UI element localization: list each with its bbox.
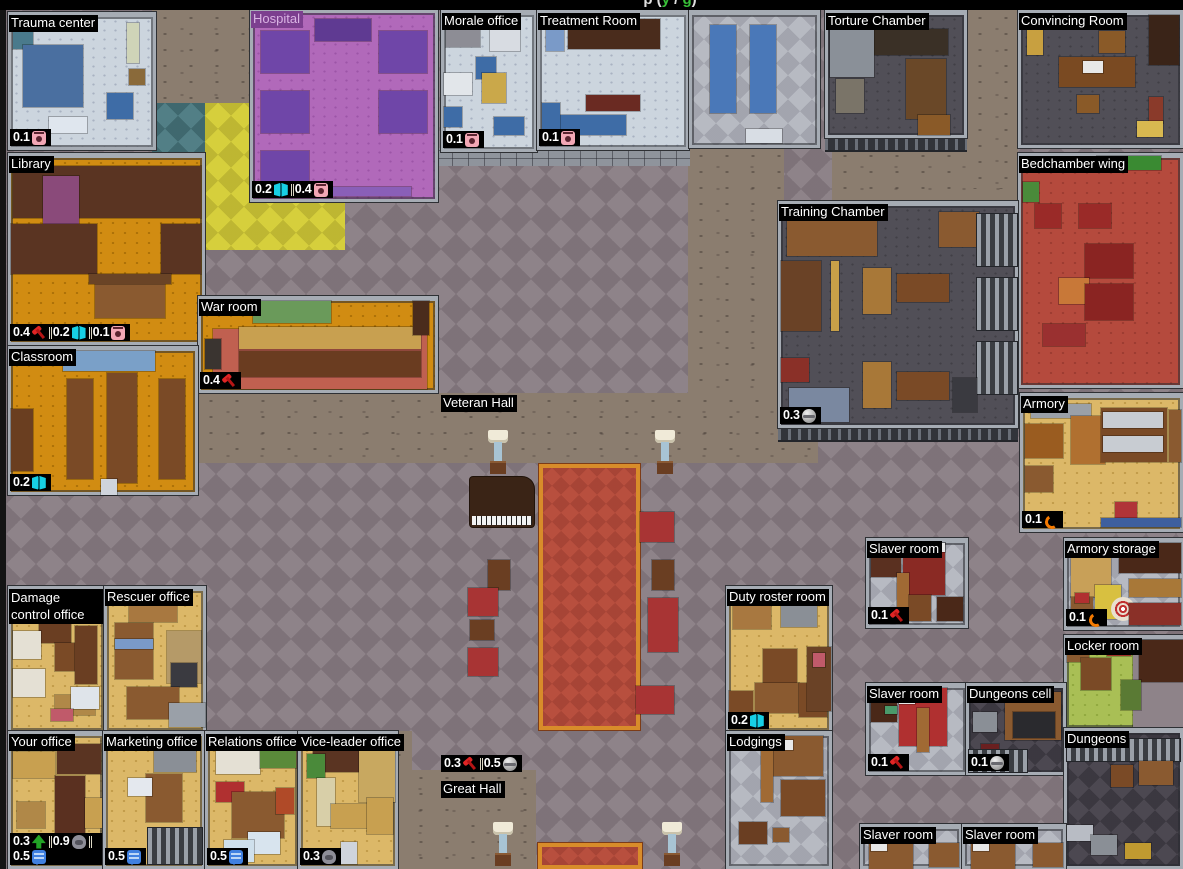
top-bar-text-fragment: p ( [643, 0, 661, 8]
room-stat-badges: 0.1 [1066, 609, 1107, 626]
room-stat-badges: 0.5 [207, 848, 248, 865]
hall-furniture [652, 560, 674, 590]
badge-value: 0.5 [484, 756, 501, 771]
badge-value: 0.9 [53, 834, 70, 849]
room-stat-badges: 0.2 [10, 474, 51, 491]
furniture [115, 623, 153, 679]
badge-separator [49, 327, 50, 339]
room-bedchamber-wing[interactable]: Bedchamber wing [1018, 153, 1183, 388]
furniture [897, 274, 949, 302]
top-bar-clipped-text: p (y / g) [400, 0, 940, 8]
badge-value: 0.3 [783, 408, 800, 423]
furniture [1077, 95, 1099, 113]
bubble-icon [127, 850, 141, 864]
badge-value: 0.1 [93, 325, 110, 340]
room-stat-badges: 0.1 [1022, 511, 1063, 528]
lamp-col [494, 442, 502, 461]
furniture [781, 261, 821, 331]
furniture [161, 224, 201, 274]
badge-value: 0.2 [255, 182, 272, 197]
furniture [917, 708, 929, 752]
furniture [1121, 680, 1141, 710]
floor-lamp [487, 430, 509, 474]
badge-value: 0.1 [13, 130, 30, 145]
furniture [55, 776, 85, 836]
hammer-icon [887, 753, 907, 773]
furniture [239, 327, 421, 349]
badge-value: 0.2 [731, 713, 748, 728]
furniture [367, 798, 393, 834]
furniture [1085, 244, 1133, 278]
room-treatment-room[interactable]: Treatment Room0.1 [537, 10, 689, 150]
room-stat-badges: 0.20.4 [252, 181, 333, 198]
furniture [542, 103, 560, 129]
room-damage-control-office[interactable]: Damage control office [8, 586, 106, 733]
furniture [750, 25, 776, 113]
room-label: Hospital [251, 11, 303, 28]
furniture [1099, 31, 1125, 53]
room-slaver-room-1[interactable]: Slaver room0.1 [866, 538, 968, 628]
badge-separator [89, 327, 90, 339]
room-label: Damage control office [9, 589, 103, 624]
lamp-base [490, 461, 506, 474]
room-morale-office[interactable]: Morale office0.1 [441, 10, 537, 152]
room-stat-badges: 0.1 [443, 131, 484, 148]
room-label: Training Chamber [779, 204, 888, 221]
badge-value: 0.1 [871, 755, 888, 770]
teal-floor-patch [152, 103, 205, 153]
furniture [23, 45, 83, 107]
furniture [482, 73, 506, 103]
furniture [1091, 835, 1117, 855]
badge-value: 0.5 [108, 849, 125, 864]
furniture [733, 605, 771, 629]
hall-label: Great Hall [441, 781, 505, 798]
furniture [1043, 324, 1085, 346]
badge-value: 0.4 [295, 182, 312, 197]
cell-bars [977, 342, 1017, 394]
piano [470, 477, 534, 527]
furniture [1027, 29, 1043, 55]
badge-value: 0.2 [13, 475, 30, 490]
room-your-office[interactable]: Your office0.30.90.5 [8, 731, 105, 869]
furniture [1079, 204, 1111, 228]
room-war-room[interactable]: War room0.4 [198, 296, 438, 393]
furniture [1067, 825, 1093, 841]
room-trauma-center[interactable]: Trauma center0.1 [8, 12, 156, 150]
room-classroom[interactable]: Classroom0.2 [8, 346, 198, 495]
furniture [1085, 284, 1133, 320]
furniture [444, 73, 472, 95]
furniture [1149, 97, 1163, 123]
badge-value: 0.3 [303, 849, 320, 864]
furniture [13, 631, 41, 659]
lamp-col [499, 834, 507, 853]
hammer-icon [219, 371, 239, 391]
furniture [929, 843, 959, 867]
furniture [918, 115, 950, 135]
room-stat-badges: 0.2 [728, 712, 769, 729]
room-stat-badges: 0.1 [868, 754, 909, 771]
dirt-floor-patch [152, 10, 250, 103]
furniture [773, 828, 789, 842]
furniture [1137, 121, 1163, 137]
room-stat-badges: 0.4 [200, 372, 241, 389]
medkit-icon [314, 183, 328, 197]
furniture [836, 79, 864, 113]
furniture [755, 683, 799, 713]
room-dungeons-cell[interactable]: Dungeons cell0.1 [966, 683, 1066, 775]
room-label: Slaver room [861, 827, 936, 844]
furniture [937, 597, 963, 621]
badge-value: 0.1 [971, 755, 988, 770]
furniture [1023, 182, 1039, 202]
hall-carpet [538, 843, 642, 869]
room-label: Torture Chamber [826, 13, 929, 30]
room-label: Slaver room [867, 541, 942, 558]
badge-value: 0.3 [13, 834, 30, 849]
top-bar-text-fragment: / [670, 0, 683, 8]
floor-lamp [654, 430, 676, 474]
room-torture-chamber[interactable]: Torture Chamber [825, 10, 967, 138]
hall-carpet [539, 464, 640, 730]
top-bar-text-fragment: g [683, 0, 692, 8]
furniture [1013, 712, 1055, 738]
hall-furniture [468, 588, 498, 616]
book-icon [750, 714, 764, 728]
fence-floor-patch [778, 426, 1018, 442]
room-training-chamber[interactable]: Training Chamber0.3 [778, 201, 1018, 428]
furniture [897, 372, 949, 400]
furniture [739, 822, 767, 844]
badge-separator [89, 836, 90, 848]
furniture [830, 27, 874, 77]
furniture [331, 804, 367, 828]
furniture [315, 19, 371, 41]
furniture [239, 351, 421, 377]
furniture [781, 780, 825, 816]
furniture [1025, 424, 1063, 458]
room-locker-room[interactable]: Locker room [1064, 635, 1183, 730]
room-stat-badges: 0.1 [968, 754, 1009, 771]
bubble-icon [229, 850, 243, 864]
medkit-icon [111, 326, 125, 340]
furniture [1033, 843, 1063, 867]
book-icon [32, 476, 46, 490]
room-armory-storage[interactable]: Armory storage0.1 [1064, 538, 1183, 630]
badge-value: 0.3 [444, 756, 461, 771]
lamp-base [657, 461, 673, 474]
book-icon [72, 326, 86, 340]
room-vice-leader-office[interactable]: Vice-leader office0.3 [298, 731, 398, 869]
furniture [813, 653, 825, 667]
furniture [129, 69, 145, 85]
cell-bars [148, 828, 202, 864]
furniture [89, 274, 171, 284]
furniture [1071, 416, 1105, 464]
room-label: Treatment Room [538, 13, 640, 30]
badge-value: 0.5 [210, 849, 227, 864]
room-armory[interactable]: Armory0.1 [1020, 393, 1183, 532]
ball-icon [802, 409, 816, 423]
furniture [95, 284, 165, 318]
furniture [107, 93, 133, 119]
furniture [1139, 761, 1173, 785]
room-hospital[interactable]: Hospital0.20.4 [250, 8, 438, 202]
furniture [494, 117, 524, 135]
room-stat-badges: 0.30.90.5 [10, 833, 102, 865]
furniture [115, 639, 153, 649]
hall-furniture [470, 620, 494, 640]
furniture [885, 706, 897, 714]
furniture [863, 362, 891, 408]
hood-icon [72, 835, 86, 849]
room-label: Morale office [442, 13, 521, 30]
hall-stat-badges: 0.30.5 [441, 755, 522, 772]
furniture [17, 802, 45, 828]
furniture [51, 709, 73, 721]
room-label: Locker room [1065, 638, 1142, 655]
furniture [169, 703, 205, 727]
furniture [49, 117, 87, 133]
badge-separator [480, 758, 481, 770]
lamp-base [495, 853, 511, 866]
craft-icon [1044, 513, 1058, 527]
badge-value: 0.1 [871, 608, 888, 623]
lamp-base [664, 853, 680, 866]
badge-separator [291, 184, 292, 196]
furniture [85, 798, 103, 828]
badge-value: 0.4 [13, 325, 30, 340]
room-rescuer-office[interactable]: Rescuer office [104, 586, 206, 733]
hall-label: Veteran Hall [441, 395, 517, 412]
furniture [906, 59, 946, 119]
badge-value: 0.4 [203, 373, 220, 388]
furniture [863, 268, 891, 314]
badge-value: 0.1 [1025, 512, 1042, 527]
room-stat-badges: 0.3 [300, 848, 341, 865]
furniture [253, 301, 331, 323]
furniture [781, 358, 809, 382]
furniture [1169, 410, 1181, 462]
furniture [276, 788, 294, 814]
craft-icon [1088, 611, 1102, 625]
room-duty-roster-room[interactable]: Duty roster room0.2 [726, 586, 832, 733]
furniture [1101, 518, 1181, 527]
hood-icon [322, 850, 336, 864]
arrow-icon [32, 835, 46, 849]
room-label: Your office [9, 734, 75, 751]
furniture [127, 23, 139, 63]
floor-lamp [492, 822, 514, 866]
hammer-icon [29, 323, 49, 343]
top-bar: p (y / g) [0, 0, 1183, 10]
hall-furniture [636, 686, 674, 714]
hall-furniture [468, 648, 498, 676]
lamp-col [668, 834, 676, 853]
furniture [1075, 593, 1089, 603]
furniture [75, 626, 97, 684]
room-stat-badges: 0.1 [868, 607, 909, 624]
furniture [261, 91, 309, 133]
furniture [101, 479, 117, 495]
furniture [1035, 204, 1061, 228]
furniture [710, 25, 736, 113]
room-label: Library [9, 156, 54, 173]
floor-lamp [661, 822, 683, 866]
furniture [261, 31, 309, 73]
bubble-icon [32, 850, 46, 864]
furniture [341, 842, 357, 864]
medkit-icon [32, 131, 46, 145]
furniture [107, 373, 137, 483]
game-map[interactable]: p (y / g) Trauma center0.1Hospital0.20.4… [0, 0, 1183, 869]
furniture [939, 212, 979, 247]
room-label: Relations office [206, 734, 300, 751]
room-label: Bedchamber wing [1019, 156, 1128, 173]
hall-furniture [648, 598, 678, 652]
room-label: Slaver room [867, 686, 942, 703]
furniture [1103, 412, 1163, 428]
room-label: Trauma center [9, 15, 98, 32]
furniture [586, 95, 640, 111]
furniture [1083, 61, 1103, 73]
room-label: Marketing office [104, 734, 201, 751]
hammer-icon [460, 754, 480, 774]
hall-furniture [640, 512, 674, 542]
furniture [159, 379, 185, 479]
room-label: Dungeons [1065, 731, 1129, 748]
furniture [1129, 603, 1181, 625]
furniture [1025, 466, 1053, 492]
furniture [1111, 765, 1133, 787]
room-stat-badges: 0.1 [10, 129, 51, 146]
furniture [973, 712, 997, 732]
badge-value: 0.1 [446, 132, 463, 147]
room-stat-badges: 0.1 [539, 129, 580, 146]
furniture [13, 669, 45, 697]
room-label: Vice-leader office [299, 734, 404, 751]
cell-bars [977, 278, 1017, 330]
ball-icon [990, 756, 1004, 770]
furniture [359, 744, 395, 802]
room-stat-badges: 0.5 [105, 848, 146, 865]
room-curtained-room[interactable] [689, 10, 820, 148]
lamp-col [661, 442, 669, 461]
furniture [13, 752, 55, 778]
badge-separator [49, 836, 50, 848]
furniture [1125, 843, 1151, 859]
furniture [831, 261, 839, 331]
furniture [379, 91, 427, 133]
room-label: Duty roster room [727, 589, 829, 606]
furniture [1081, 658, 1111, 690]
medkit-icon [465, 133, 479, 147]
room-dungeons[interactable]: Dungeons [1064, 728, 1183, 869]
furniture [1149, 15, 1179, 65]
room-convincing-room[interactable]: Convincing Room [1018, 10, 1183, 148]
furniture [444, 107, 462, 127]
furniture [13, 166, 201, 218]
room-slaver-room-4[interactable]: Slaver room [962, 824, 1066, 869]
furniture [1129, 579, 1181, 597]
furniture [909, 595, 931, 621]
furniture [761, 746, 773, 802]
hall-furniture [488, 560, 510, 590]
furniture [67, 379, 93, 479]
room-label: Convincing Room [1019, 13, 1127, 30]
ball-icon [503, 757, 517, 771]
furniture [307, 754, 325, 778]
room-slaver-room-2[interactable]: Slaver room0.1 [866, 683, 968, 775]
room-marketing-office[interactable]: Marketing office0.5 [103, 731, 205, 869]
furniture [1139, 640, 1183, 682]
book-icon [274, 183, 288, 197]
furniture [43, 176, 79, 228]
furniture [128, 778, 152, 796]
badge-value: 0.1 [542, 130, 559, 145]
dirt-floor-patch [967, 10, 1018, 188]
furniture [63, 351, 155, 371]
badge-value: 0.5 [13, 849, 30, 864]
room-relations-office[interactable]: Relations office0.5 [205, 731, 300, 869]
fence-floor-patch [825, 136, 967, 152]
medkit-icon [561, 131, 575, 145]
furniture [413, 301, 429, 335]
furniture [171, 663, 197, 687]
cell-bars [977, 214, 1017, 266]
room-library[interactable]: Library0.40.20.1 [8, 153, 205, 345]
room-lodgings[interactable]: Lodgings [726, 731, 832, 869]
room-slaver-room-3[interactable]: Slaver room [860, 824, 962, 869]
furniture [11, 409, 33, 471]
room-label: Armory [1021, 396, 1068, 413]
furniture [205, 339, 221, 369]
room-label: Armory storage [1065, 541, 1159, 558]
furniture [71, 687, 99, 709]
room-label: Slaver room [963, 827, 1038, 844]
room-stat-badges: 0.40.20.1 [10, 324, 130, 341]
room-label: Lodgings [727, 734, 785, 751]
furniture [746, 129, 782, 143]
badge-value: 0.2 [53, 325, 70, 340]
room-stat-badges: 0.3 [780, 407, 821, 424]
furniture [11, 224, 97, 274]
room-label: War room [199, 299, 261, 316]
furniture [953, 378, 977, 412]
badge-value: 0.1 [1069, 610, 1086, 625]
hammer-icon [887, 606, 907, 626]
room-label: Rescuer office [105, 589, 193, 606]
furniture [787, 216, 877, 256]
top-bar-text-fragment: y [662, 0, 670, 8]
room-label: Dungeons cell [967, 686, 1054, 703]
top-bar-text-fragment: ) [692, 0, 697, 8]
furniture [379, 31, 427, 73]
room-label: Classroom [9, 349, 76, 366]
furniture [1103, 436, 1163, 452]
